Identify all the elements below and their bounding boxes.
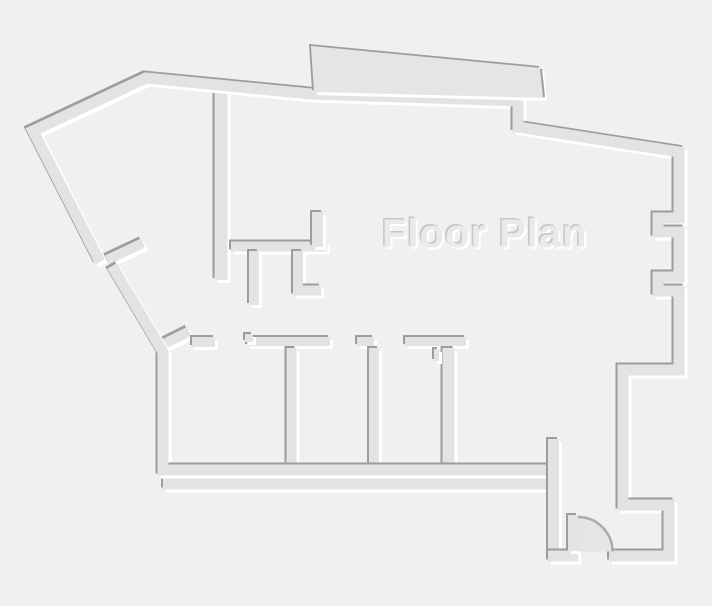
floor-plan-svg [0,0,712,606]
floor-plan-title: Floor Plan [382,212,588,257]
floor-plan-page: Floor Plan [0,0,712,606]
